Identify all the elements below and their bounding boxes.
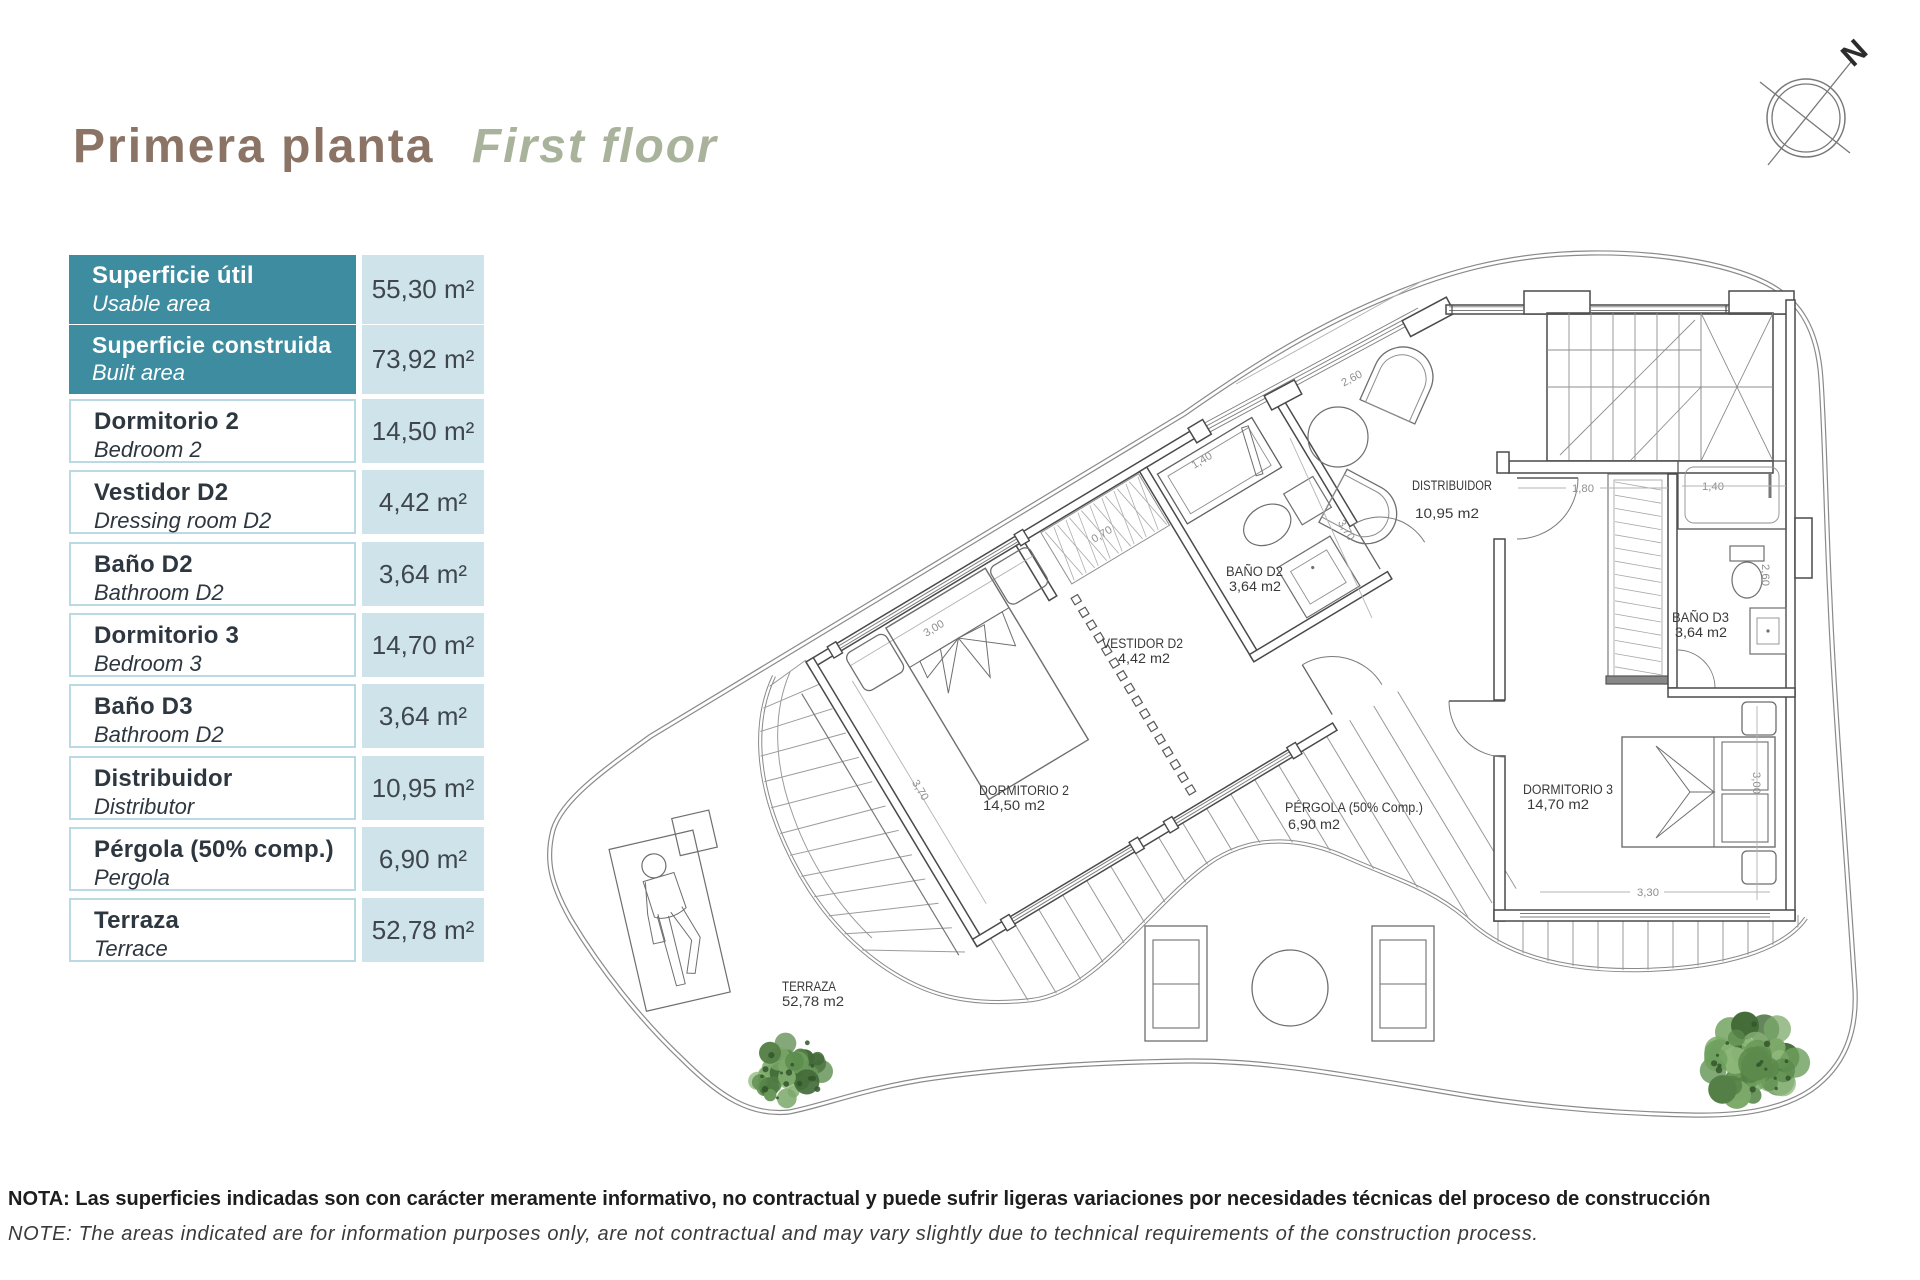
svg-text:DORMITORIO 2: DORMITORIO 2 — [979, 783, 1069, 798]
svg-text:DORMITORIO 3: DORMITORIO 3 — [1523, 782, 1613, 797]
svg-text:3,64 m2: 3,64 m2 — [1229, 579, 1281, 594]
svg-text:3,30: 3,30 — [1637, 887, 1659, 899]
svg-text:14,50 m2: 14,50 m2 — [983, 798, 1045, 813]
svg-text:VESTIDOR D2: VESTIDOR D2 — [1102, 636, 1183, 651]
svg-text:0,70: 0,70 — [1090, 524, 1115, 546]
svg-text:3,00: 3,00 — [1750, 772, 1762, 794]
svg-text:BAÑO D3: BAÑO D3 — [1672, 610, 1729, 625]
svg-text:14,70 m2: 14,70 m2 — [1527, 797, 1589, 812]
svg-text:DISTRIBUIDOR: DISTRIBUIDOR — [1412, 478, 1492, 493]
svg-text:N: N — [1834, 32, 1874, 73]
svg-text:52,78 m2: 52,78 m2 — [782, 994, 844, 1009]
svg-text:1,40: 1,40 — [1702, 481, 1724, 493]
svg-text:3,64 m2: 3,64 m2 — [1675, 625, 1727, 640]
svg-text:PÉRGOLA (50% Comp.): PÉRGOLA (50% Comp.) — [1285, 800, 1423, 815]
svg-text:TERRAZA: TERRAZA — [782, 979, 836, 994]
svg-text:4,42 m2: 4,42 m2 — [1118, 651, 1170, 666]
svg-text:BAÑO D2: BAÑO D2 — [1226, 564, 1283, 579]
svg-text:2,60: 2,60 — [1339, 368, 1364, 389]
svg-text:3,70: 3,70 — [909, 778, 931, 803]
svg-text:6,90 m2: 6,90 m2 — [1288, 817, 1340, 832]
svg-text:10,95 m2: 10,95 m2 — [1415, 506, 1479, 521]
svg-text:2,60: 2,60 — [1759, 564, 1771, 586]
svg-text:1,80: 1,80 — [1572, 483, 1594, 495]
